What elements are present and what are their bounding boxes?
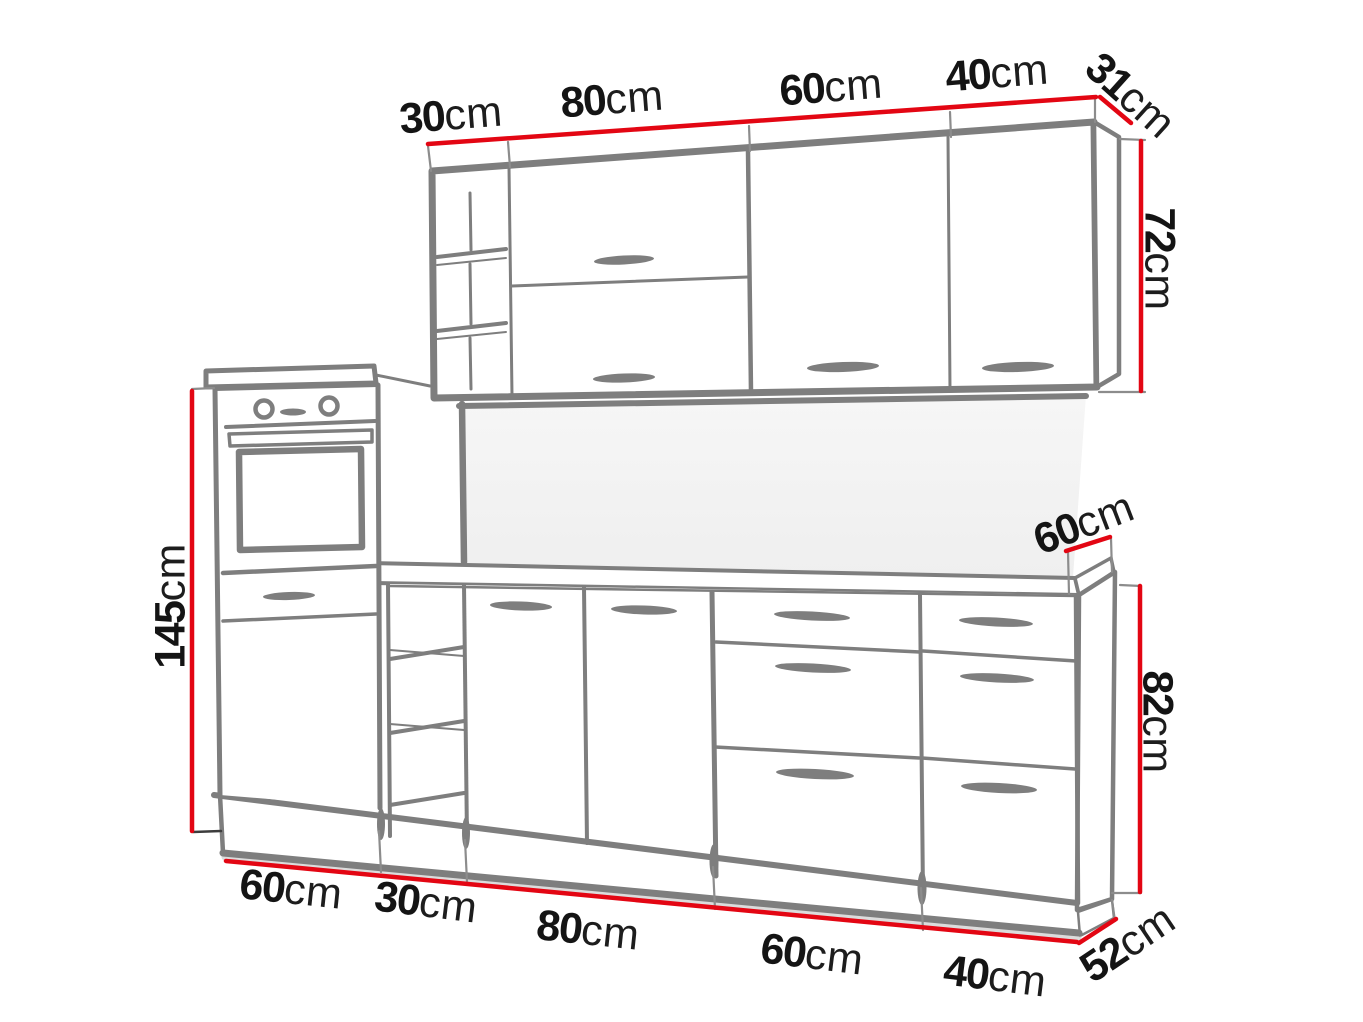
dim-unit: cm (416, 878, 480, 933)
dim-value: 60 (237, 860, 287, 912)
dim-value: 72 (1136, 207, 1184, 252)
dim-unit: cm (985, 952, 1049, 1007)
dim-unit: cm (579, 906, 642, 960)
dim-label-base-height-82: 82cm (1136, 670, 1179, 773)
dim-unit: cm (1134, 715, 1182, 773)
dim-value: 30 (372, 872, 422, 925)
dim-label-tall-height-145: 145cm (150, 543, 193, 669)
dim-unit: cm (147, 543, 195, 601)
tick (193, 831, 221, 832)
dim-unit: cm (603, 72, 665, 124)
kitchen-dimension-diagram: 30cm 80cm 60cm 40cm 31cm 72cm 145cm 60cm… (0, 0, 1363, 1022)
tick (428, 146, 431, 171)
dim-value: 40 (941, 946, 991, 999)
dim-label-wall-width-40: 40cm (944, 49, 1050, 100)
wall-cabinet-side-panel (1094, 122, 1119, 387)
dim-unit: cm (442, 88, 504, 140)
dim-label-base-width-80: 80cm (534, 904, 641, 958)
dim-label-wall-width-60: 60cm (778, 63, 884, 114)
dim-unit: cm (802, 930, 866, 985)
dim-unit: cm (822, 60, 884, 112)
dim-value: 60 (778, 64, 826, 115)
dim-label-wall-width-30: 30cm (398, 91, 504, 142)
backsplash-left-edge (462, 404, 464, 562)
tick (1068, 552, 1069, 594)
wall-cabinets (432, 122, 1119, 398)
base-front-face (389, 584, 1079, 903)
dim-label-wall-width-80: 80cm (559, 75, 665, 126)
dim-unit: cm (1136, 252, 1184, 310)
tick (749, 126, 750, 151)
oven-display (280, 409, 306, 416)
base-shelf-edge (388, 584, 390, 836)
tick (192, 388, 214, 389)
dim-label-base-width-60a: 60cm (237, 863, 344, 917)
wall-cabinet-frame (432, 122, 1097, 398)
dim-value: 82 (1134, 670, 1182, 715)
tick (950, 112, 951, 137)
dim-unit: cm (282, 865, 345, 919)
dim-value: 60 (758, 924, 808, 977)
kitchen-line-art (0, 0, 1363, 1022)
wall-shelf-post (470, 193, 471, 250)
dim-value: 30 (398, 92, 446, 143)
plinth-left-edge (220, 795, 223, 853)
tall-top-connector (376, 375, 430, 386)
base-right-edge (1076, 597, 1078, 903)
backsplash-face (462, 395, 1086, 577)
wall-divider-60-40 (948, 136, 950, 390)
tall-right-edge (378, 385, 380, 808)
dim-value: 80 (559, 76, 607, 127)
dim-label-wall-height-72: 72cm (1138, 207, 1181, 310)
tick (1111, 538, 1112, 572)
wall-divider-80-60 (748, 151, 751, 392)
base-side-panel (1077, 572, 1115, 910)
sketch-lines (192, 98, 1145, 937)
dim-value: 145 (147, 602, 195, 669)
dim-unit: cm (988, 46, 1050, 98)
backsplash-panel (459, 395, 1086, 577)
wall-shelf-post (470, 264, 471, 324)
wall-shelf-post (470, 338, 471, 389)
dim-value: 80 (534, 901, 584, 953)
dim-value: 40 (944, 50, 992, 101)
